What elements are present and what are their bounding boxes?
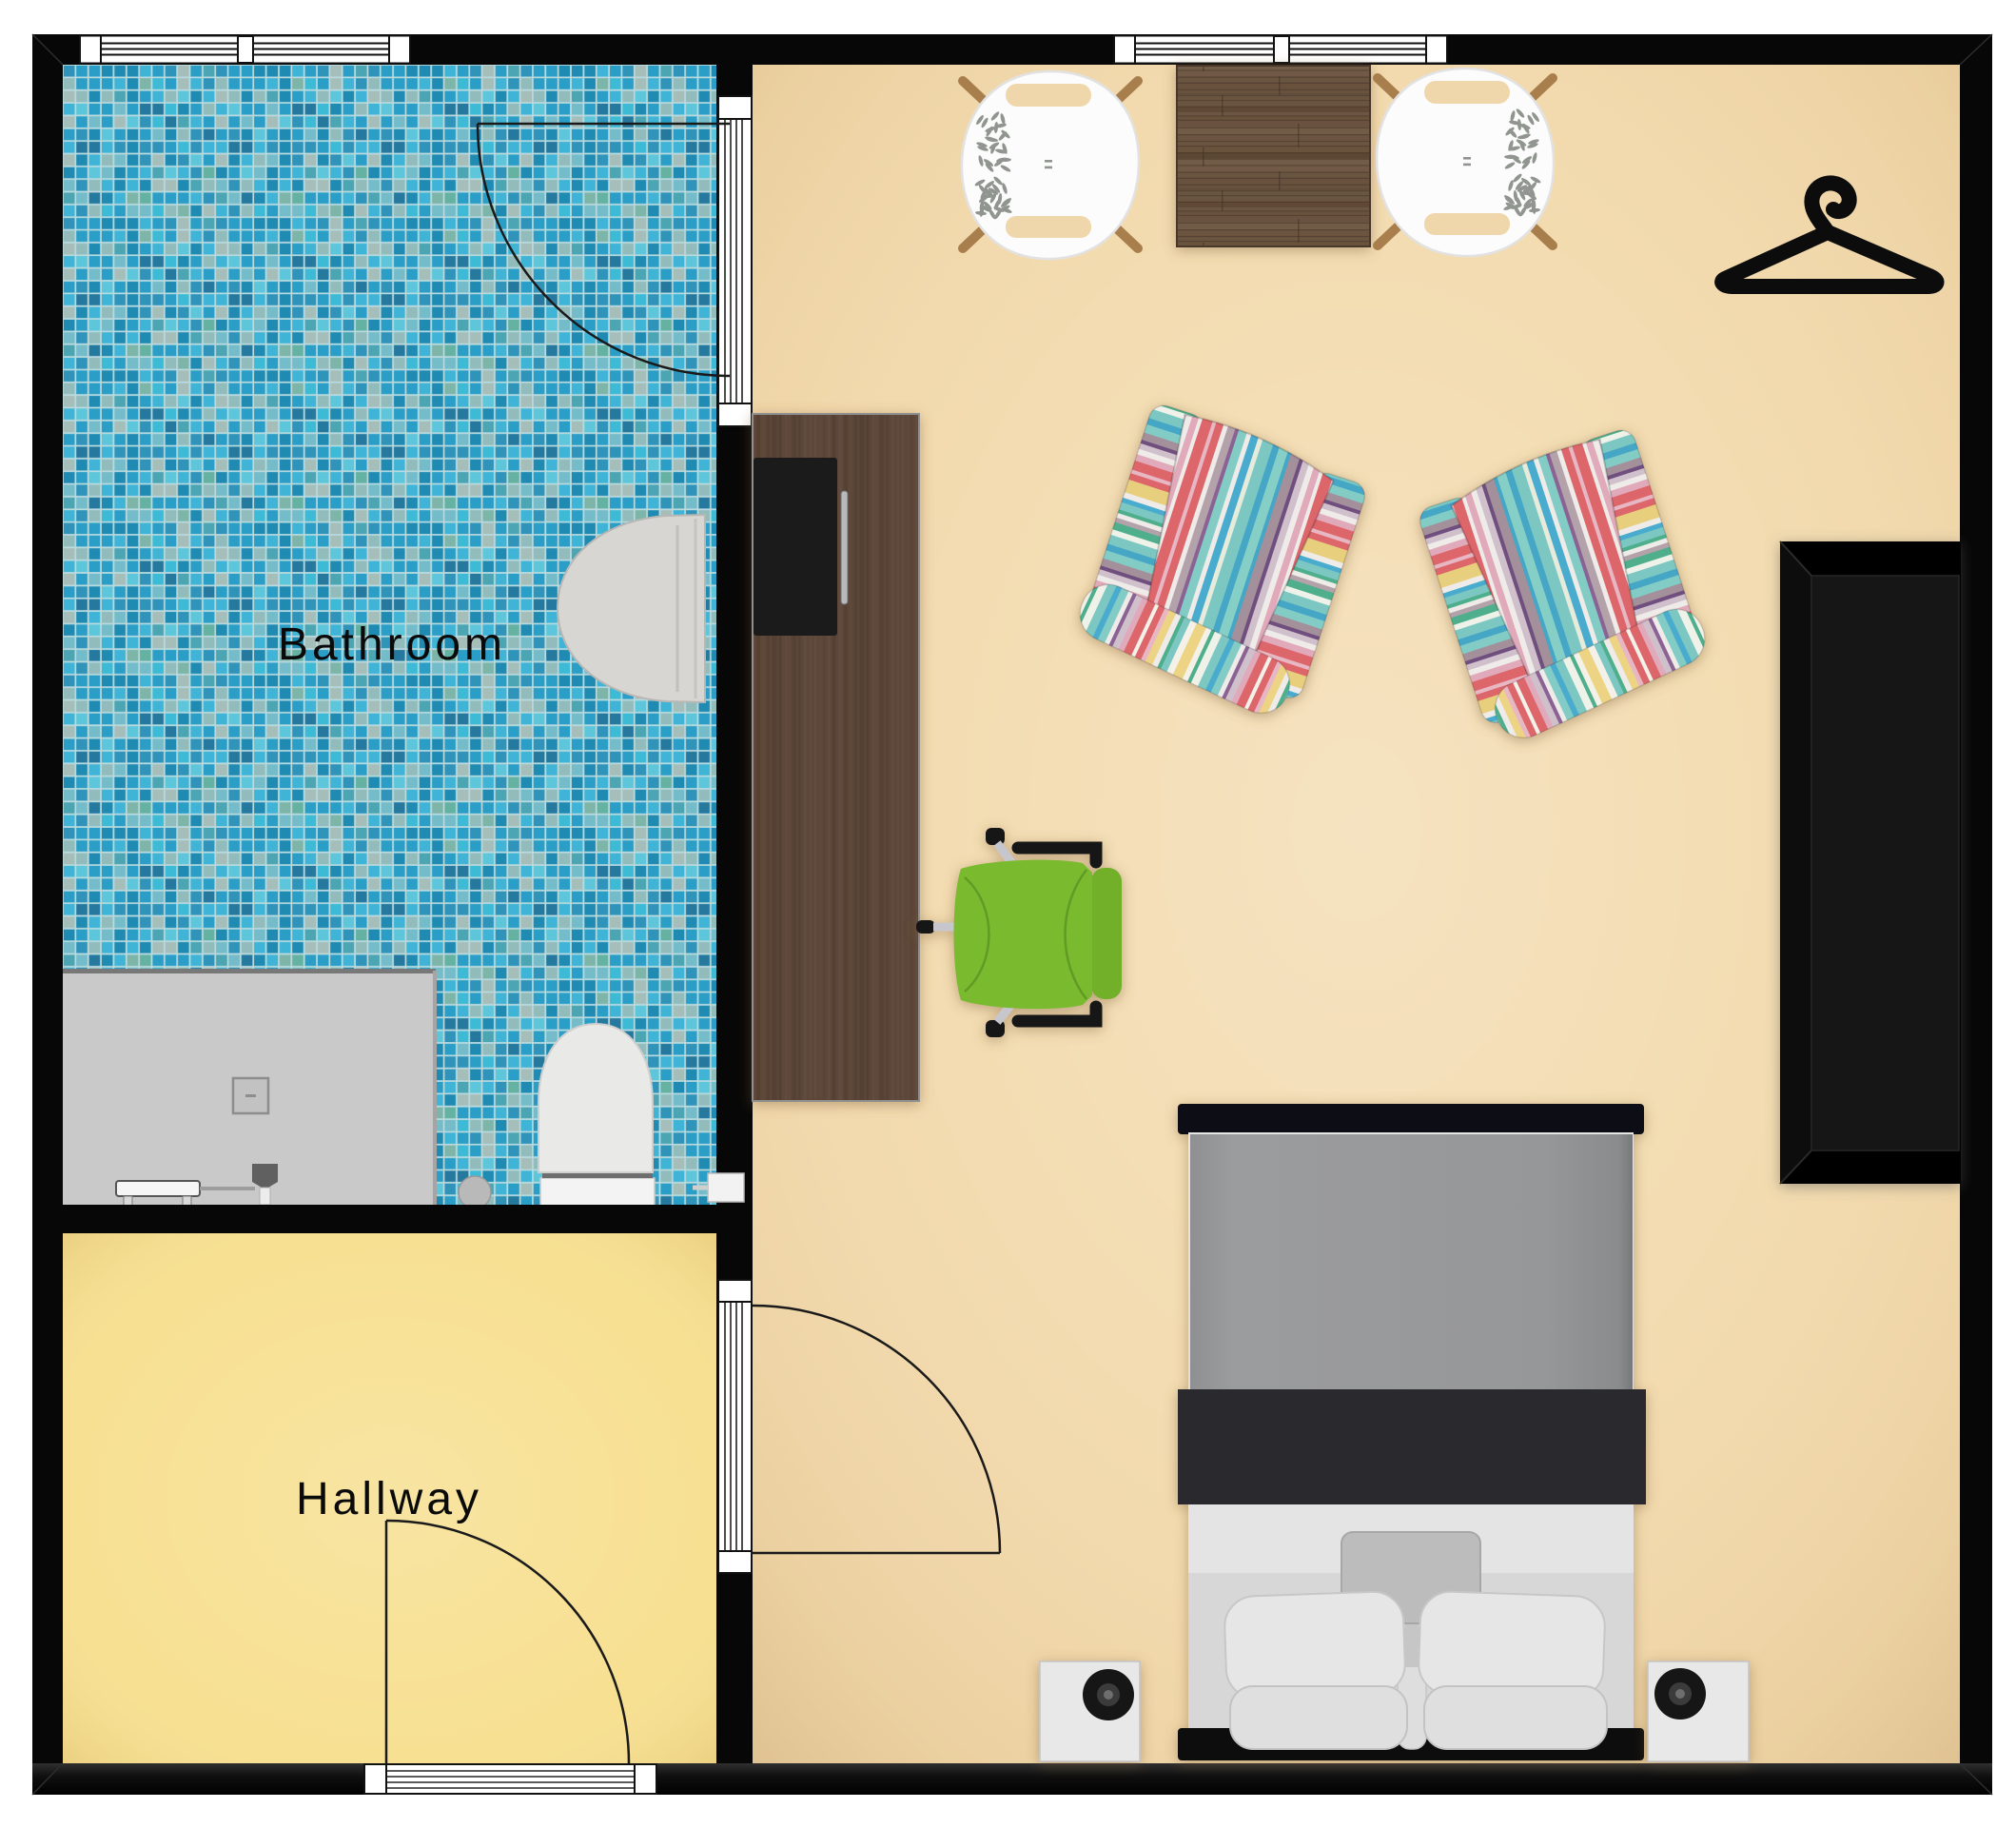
svg-text:Hallway: Hallway: [296, 1474, 482, 1524]
svg-text:Bathroom: Bathroom: [278, 619, 506, 670]
